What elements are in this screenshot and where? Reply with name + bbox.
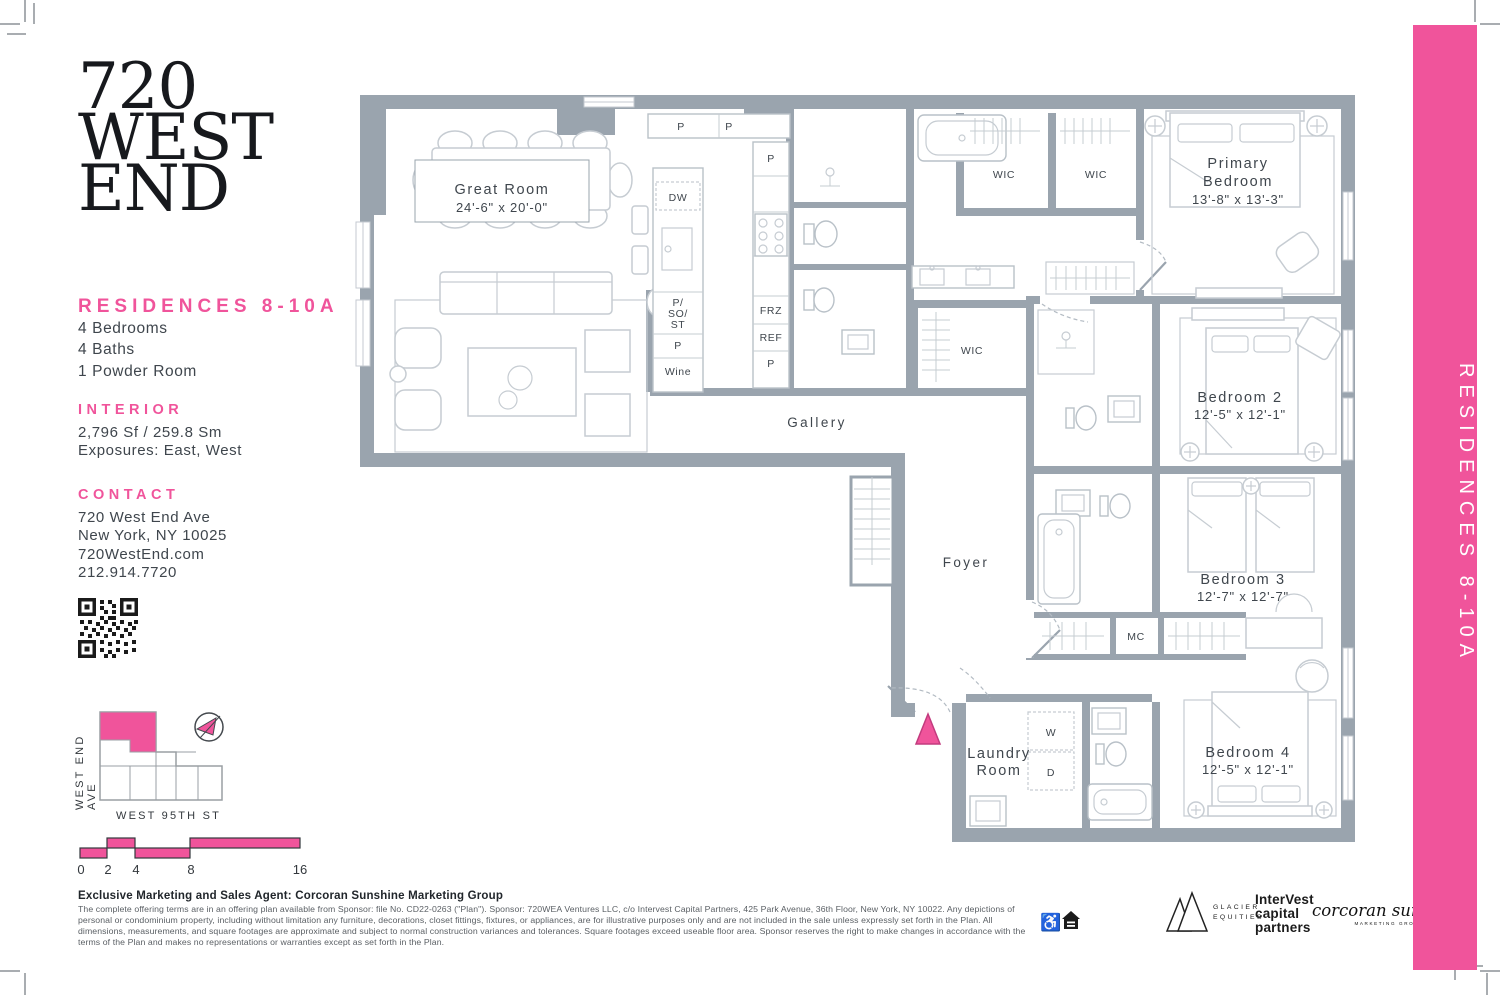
fridge-label: REF xyxy=(760,332,783,344)
island-pantry-label: P xyxy=(674,340,682,352)
brochure-page: Great Room 24'-6" x 20'-0" Primary Bedro… xyxy=(0,0,1500,995)
bedroom2-furniture xyxy=(1180,308,1342,461)
building-logo: 720 WEST END xyxy=(78,62,273,216)
agent-line: Exclusive Marketing and Sales Agent: Cor… xyxy=(78,890,503,902)
intervest-line-1: InterVest xyxy=(1255,893,1314,907)
mc-label: MC xyxy=(1127,631,1145,643)
street-label-west-95th-st: WEST 95TH ST xyxy=(116,810,221,822)
side-banner-text: RESIDENCES 8-10A xyxy=(1413,73,1477,953)
entry-marker xyxy=(916,714,940,744)
interior-heading: INTERIOR xyxy=(78,402,183,418)
interior-area: 2,796 Sf / 259.8 Sm xyxy=(78,424,222,442)
great-room-dims: 24'-6" x 20'-0" xyxy=(456,200,548,215)
scale-tick-0: 0 xyxy=(77,862,84,877)
laundry-label-1: Laundry xyxy=(967,746,1031,762)
bedroom2-dims: 12'-5" x 12'-1" xyxy=(1194,407,1286,422)
dryer-label: D xyxy=(1047,767,1055,779)
svg-text:♿: ♿ xyxy=(1040,912,1061,932)
side-banner: RESIDENCES 8-10A xyxy=(1413,25,1477,970)
wic1-label: WIC xyxy=(993,169,1015,181)
pantry-stack-3: ST xyxy=(671,319,686,331)
residence-title: RESIDENCES 8-10A xyxy=(78,296,339,318)
scale-tick-4: 4 xyxy=(132,862,139,877)
pantry-label-3: P xyxy=(767,153,775,165)
feature-baths: 4 Baths xyxy=(78,341,197,359)
interior-exposures: Exposures: East, West xyxy=(78,442,242,460)
great-room-label: Great Room xyxy=(455,182,550,198)
feature-powder: 1 Powder Room xyxy=(78,363,197,381)
bedroom3-label: Bedroom 3 xyxy=(1200,572,1285,588)
street-label-west-end-ave: WEST END AVE xyxy=(74,706,98,810)
bedroom4-dims: 12'-5" x 12'-1" xyxy=(1202,762,1294,777)
bedroom3-dims: 12'-7" x 12'-7" xyxy=(1197,589,1289,604)
bedroom4-label: Bedroom 4 xyxy=(1205,745,1290,761)
primary-bedroom-dims: 13'-8" x 13'-3" xyxy=(1192,192,1284,207)
qr-code xyxy=(75,595,141,661)
scale-tick-16: 16 xyxy=(293,862,307,877)
compass-icon xyxy=(195,713,223,741)
feature-list: 4 Bedrooms 4 Baths 1 Powder Room xyxy=(78,320,197,384)
disclaimer-text: The complete offering terms are in an of… xyxy=(78,904,1036,949)
scale-tick-8: 8 xyxy=(187,862,194,877)
contact-block: 720 West End Ave New York, NY 10025 720W… xyxy=(78,509,227,582)
contact-phone[interactable]: 212.914.7720 xyxy=(78,564,227,582)
wine-label: Wine xyxy=(665,366,691,378)
contact-city: New York, NY 10025 xyxy=(78,527,227,545)
accessibility-icon: ♿ xyxy=(1040,912,1061,932)
bedroom4-furniture xyxy=(1184,618,1336,818)
wic2-label: WIC xyxy=(1085,169,1107,181)
freezer-label: FRZ xyxy=(760,305,782,317)
equal-housing-icon xyxy=(1062,911,1080,929)
laundry-label-2: Room xyxy=(976,763,1021,779)
site-map xyxy=(100,712,223,800)
contact-heading: CONTACT xyxy=(78,487,179,503)
wic3-label: WIC xyxy=(961,345,983,357)
contact-address: 720 West End Ave xyxy=(78,509,227,527)
gallery-label: Gallery xyxy=(787,415,847,430)
primary-bedroom-label2: Bedroom xyxy=(1203,174,1273,190)
scale-bar xyxy=(80,838,300,858)
foyer-label: Foyer xyxy=(943,555,990,570)
pantry-label-1: P xyxy=(677,121,685,133)
pantry-label-4: P xyxy=(767,358,775,370)
intervest-line-2: capital xyxy=(1255,907,1314,921)
contact-website[interactable]: 720WestEnd.com xyxy=(78,546,227,564)
washer-label: W xyxy=(1046,727,1057,739)
scale-tick-2: 2 xyxy=(104,862,111,877)
bedroom2-label: Bedroom 2 xyxy=(1197,390,1282,406)
glacier-equities-icon xyxy=(1167,893,1207,931)
great-room-furniture xyxy=(390,131,681,452)
dishwasher-label: DW xyxy=(669,192,688,204)
intervest-line-3: partners xyxy=(1255,921,1314,935)
feature-bedrooms: 4 Bedrooms xyxy=(78,320,197,338)
stair-core xyxy=(851,477,893,585)
primary-bedroom-label1: Primary xyxy=(1207,156,1268,172)
intervest-logo: InterVest capital partners xyxy=(1255,893,1314,934)
pantry-label-2: P xyxy=(725,121,733,133)
